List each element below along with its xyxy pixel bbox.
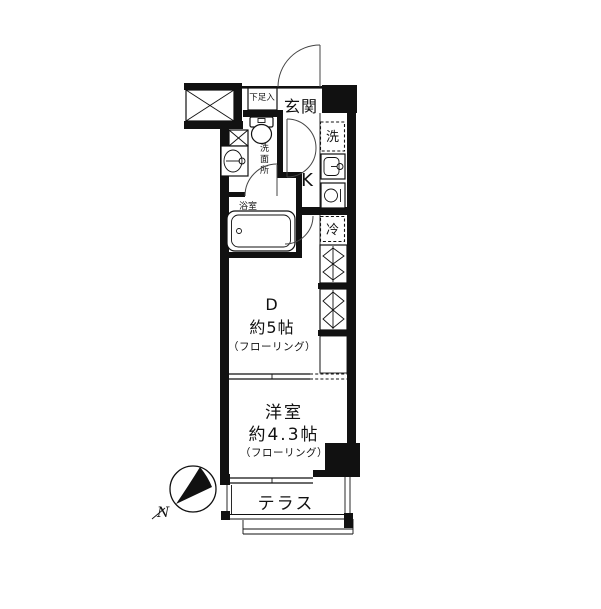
- vanity-sink-icon: [221, 146, 248, 176]
- compass-north-label: N: [156, 505, 170, 521]
- fridge-label: 冷: [326, 223, 339, 238]
- floorplan-page: { "floorplan": { "type": "apartment-floo…: [0, 0, 601, 609]
- canvas-background: [0, 0, 601, 609]
- western-size: 約4.3帖: [248, 425, 319, 445]
- bathroom-label: 浴室: [239, 200, 257, 212]
- kitchen-label: K: [301, 170, 314, 191]
- floorplan-drawing: 下足入 玄関 洗面所 浴室: [0, 0, 601, 609]
- dining-size: 約5帖: [249, 318, 294, 337]
- elevator-shaft: [186, 90, 234, 121]
- genkan-label: 玄関: [284, 97, 318, 116]
- western-floor-type: （フローリング）: [240, 446, 328, 459]
- dining-label: D: [265, 295, 278, 314]
- western-label: 洋室: [265, 403, 303, 423]
- dining-floor-type: （フローリング）: [228, 340, 316, 353]
- shoe-box-label: 下足入: [249, 93, 275, 103]
- kitchen-sink-icon: [321, 154, 345, 179]
- stove-icon: [321, 183, 345, 208]
- terrace-label: テラス: [258, 494, 315, 514]
- toilet-icon: [250, 117, 273, 144]
- washer-label: 洗: [326, 130, 339, 145]
- washroom-label: 洗面所: [258, 142, 269, 176]
- bathtub-icon: [227, 211, 295, 251]
- pipe-space: [229, 130, 248, 146]
